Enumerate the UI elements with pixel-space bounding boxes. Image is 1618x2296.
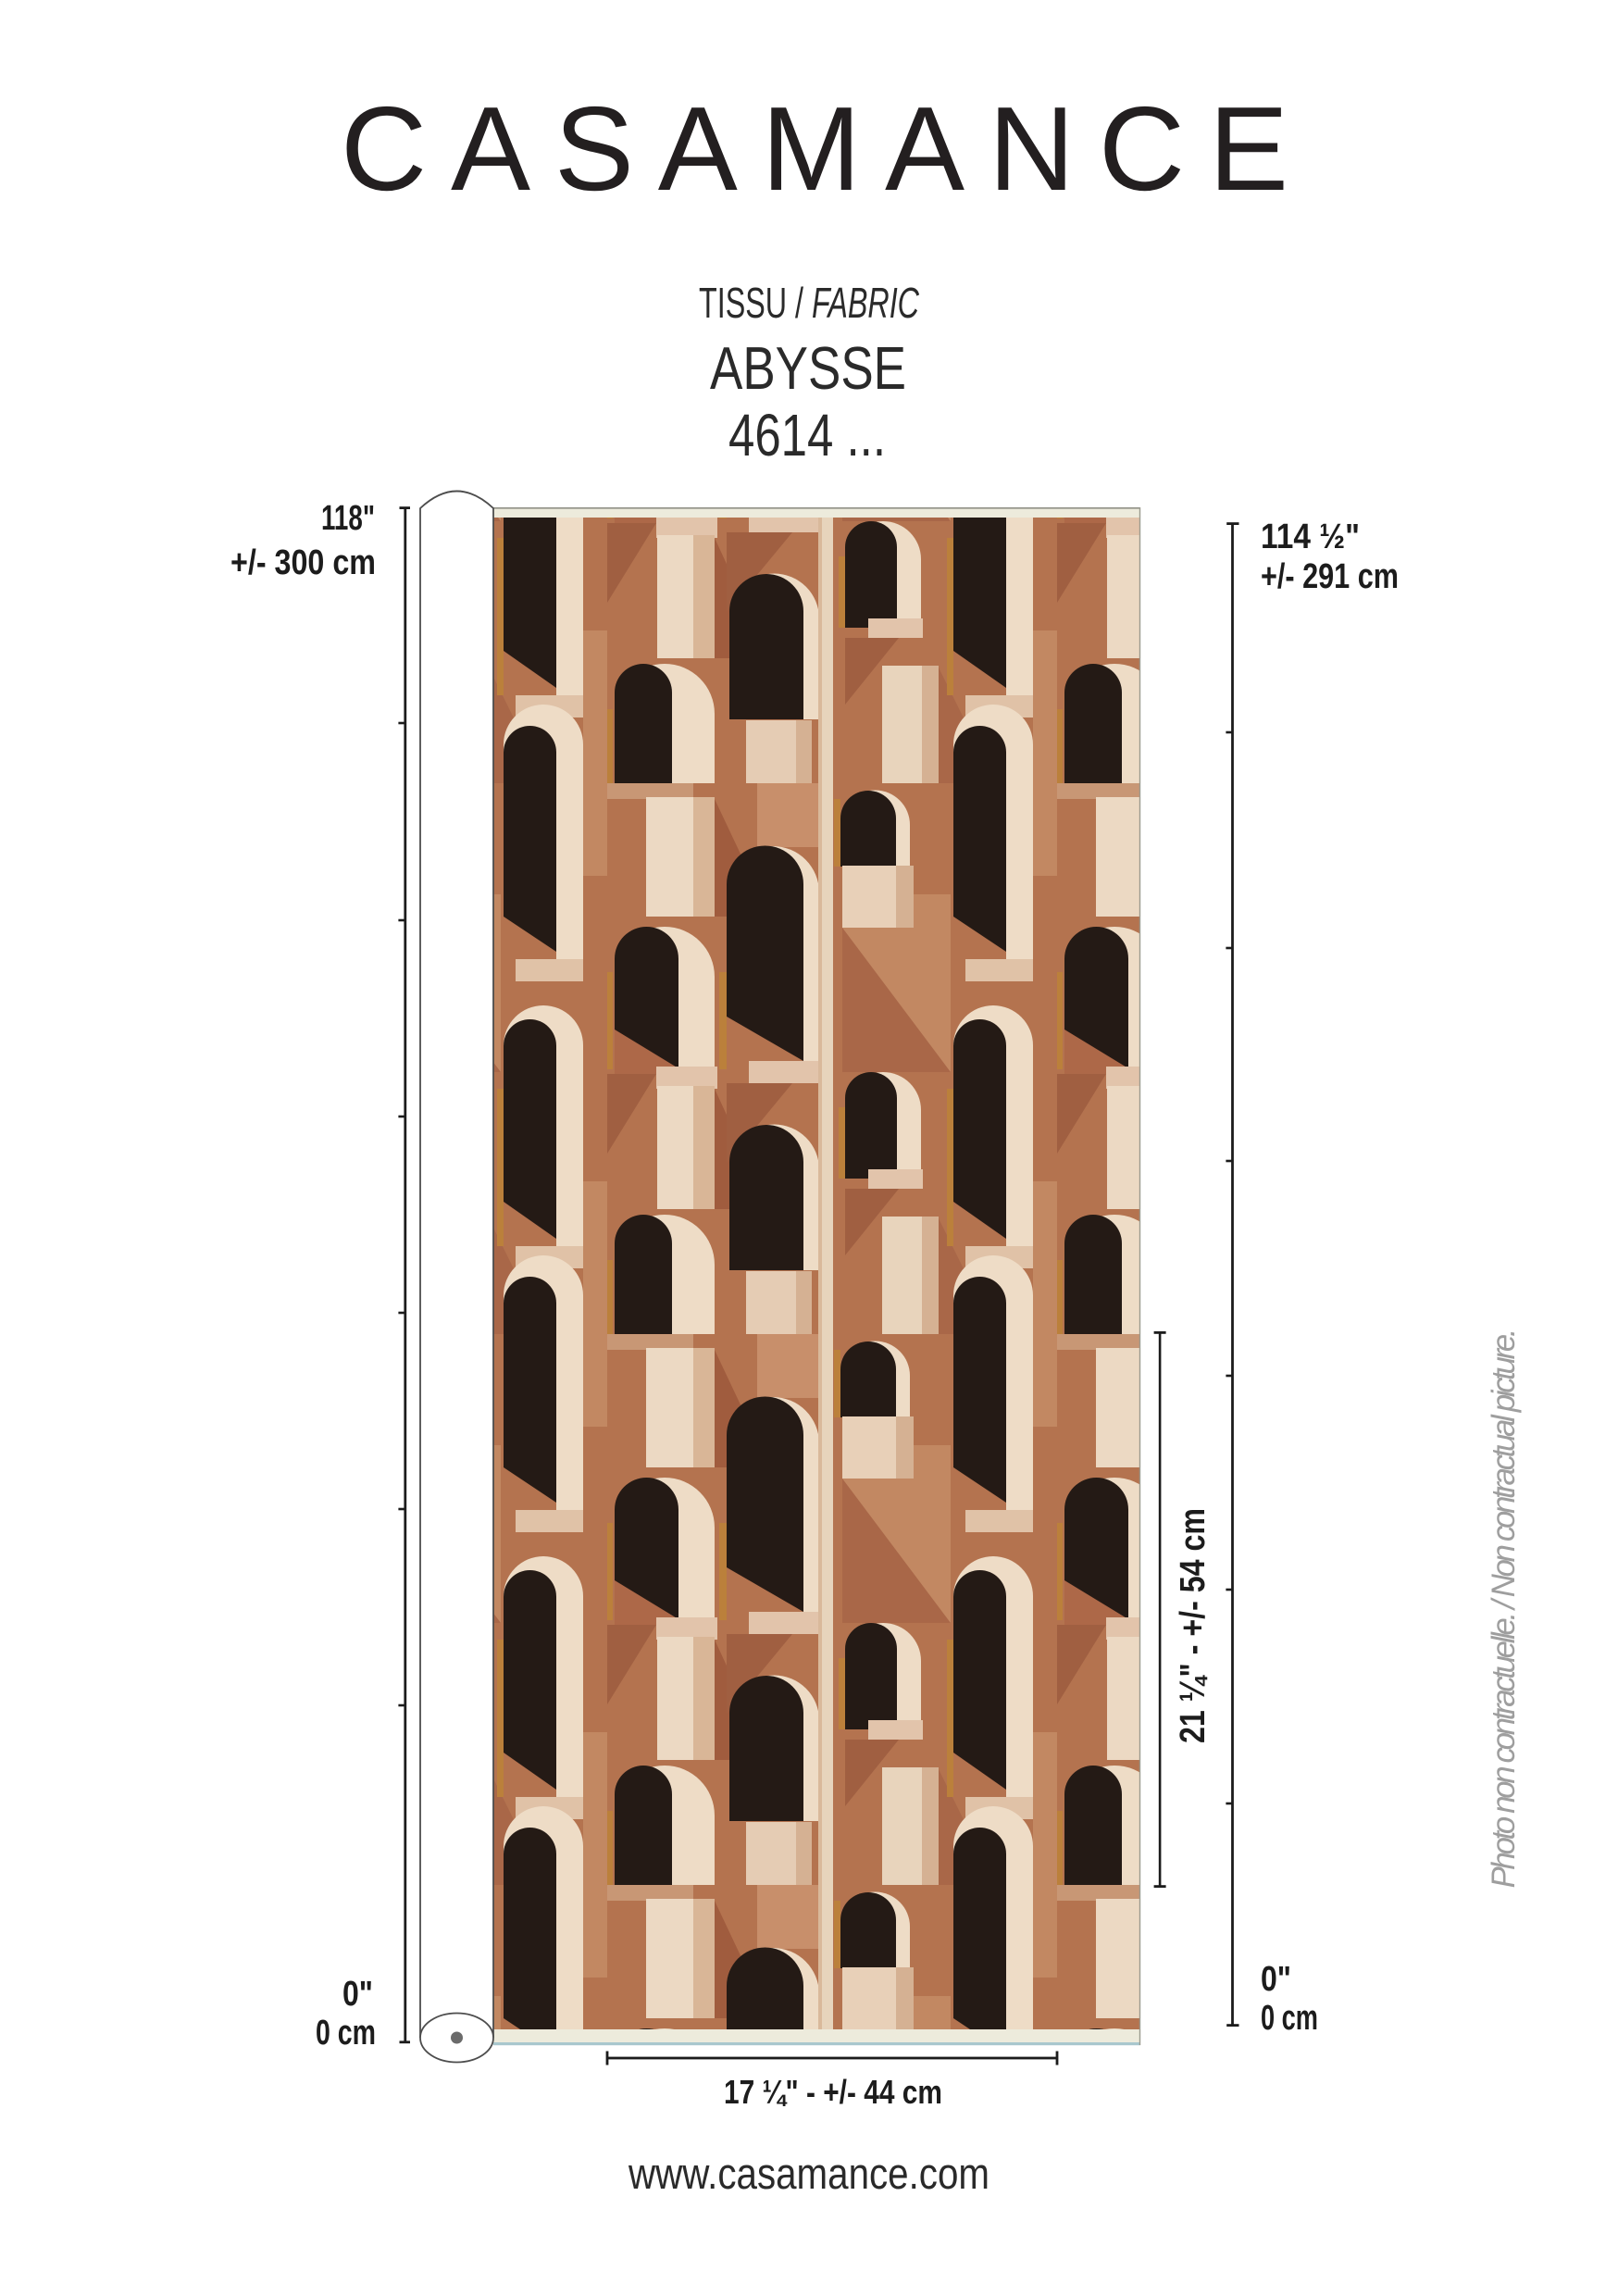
- svg-text:+/- 300 cm: +/- 300 cm: [230, 543, 376, 582]
- svg-text:Photo non contractuelle. / Non: Photo non contractuelle. / Non contractu…: [1486, 1329, 1522, 1889]
- svg-text:0": 0": [1261, 1960, 1291, 1999]
- svg-text:21 ¼" - +/- 54 cm: 21 ¼" - +/- 54 cm: [1174, 1508, 1213, 1743]
- svg-text:118": 118": [321, 499, 375, 538]
- svg-text:0 cm: 0 cm: [1261, 1999, 1318, 2038]
- svg-text:+/- 291 cm: +/- 291 cm: [1261, 557, 1399, 596]
- svg-text:114 ½": 114 ½": [1261, 518, 1360, 556]
- svg-text:17 ¼" - +/- 44 cm: 17 ¼" - +/- 44 cm: [724, 2073, 942, 2111]
- svg-text:0 cm: 0 cm: [316, 2014, 376, 2053]
- svg-text:TISSU / FABRIC: TISSU / FABRIC: [699, 279, 920, 327]
- svg-text:CASAMANCE: CASAMANCE: [341, 82, 1288, 216]
- svg-text:4614 ...: 4614 ...: [728, 402, 886, 468]
- svg-text:www.casamance.com: www.casamance.com: [628, 2149, 989, 2198]
- svg-text:0": 0": [342, 1975, 373, 2014]
- svg-text:ABYSSE: ABYSSE: [710, 334, 906, 402]
